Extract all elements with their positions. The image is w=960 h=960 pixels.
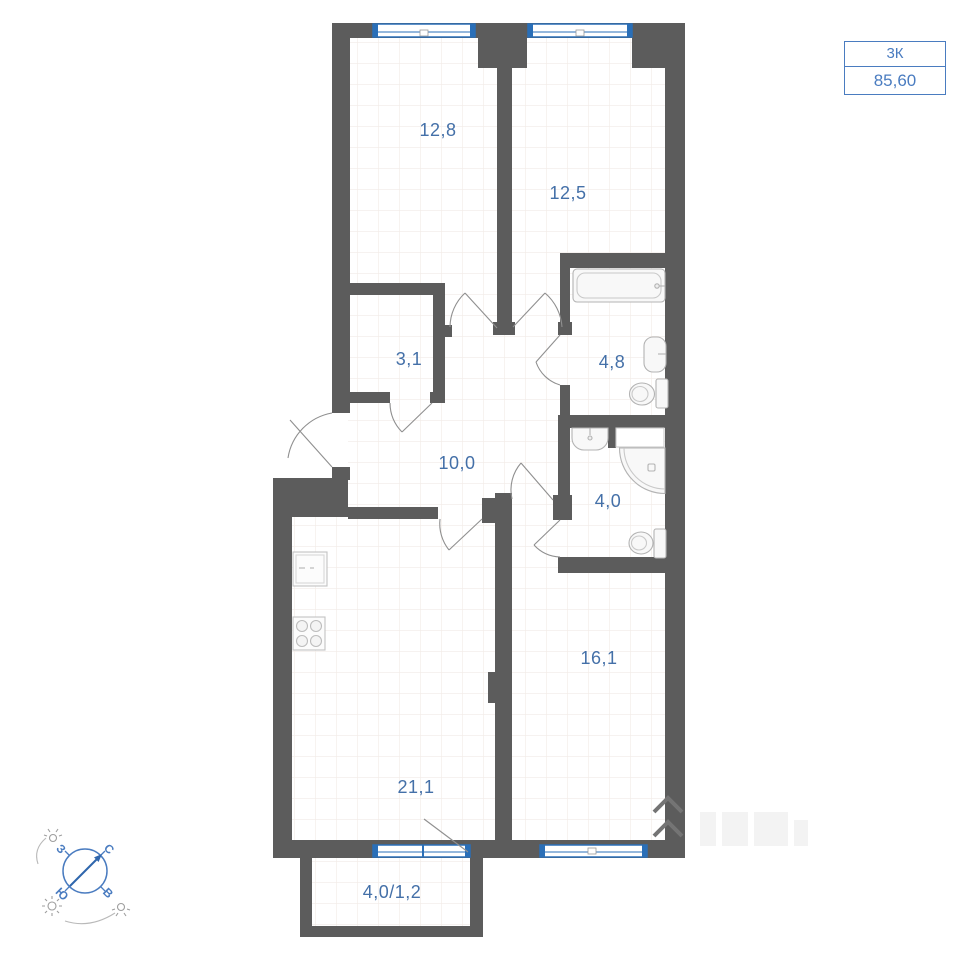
- wall-segment: [300, 855, 312, 937]
- wall-segment: [332, 23, 350, 413]
- wall-segment: [300, 926, 483, 937]
- compass-arrow: [70, 854, 102, 886]
- wall-segment: [560, 385, 570, 415]
- area-label-wardrobe: 3,1: [396, 349, 423, 369]
- area-label-bathroom: 4,8: [599, 352, 626, 372]
- compass-west: З: [53, 841, 68, 856]
- wall-segment: [488, 672, 495, 703]
- shower-washbasin: [572, 428, 608, 450]
- kitchen-sink: [293, 552, 327, 586]
- wall-segment: [560, 253, 570, 322]
- wall-segment: [558, 557, 685, 573]
- wall-segment: [558, 415, 685, 428]
- wall-segment: [348, 283, 445, 295]
- wall-segment: [433, 283, 445, 403]
- half-sun-icon-nw: [44, 829, 62, 842]
- floor-plan-page: 12,8 12,5 3,1 4,8 10,0 4,0 16,1 21,1 4,0…: [0, 0, 960, 960]
- wall-segment: [470, 855, 483, 937]
- duct-niche: [616, 428, 664, 447]
- area-label-hallway: 10,0: [438, 453, 475, 473]
- unit-type-label: 3К: [845, 42, 945, 67]
- bathtub: [573, 269, 665, 302]
- wall-segment: [348, 507, 438, 519]
- wall-segment: [493, 322, 515, 335]
- window: [528, 24, 632, 37]
- bathroom-sink: [644, 337, 666, 372]
- wall-segment: [665, 23, 685, 858]
- wall-segment: [430, 392, 445, 403]
- sun-icon: [42, 896, 62, 916]
- wall-segment: [558, 428, 570, 495]
- wall-segment: [445, 325, 452, 337]
- area-label-balcony: 4,0/1,2: [363, 882, 422, 902]
- area-label-room-3: 16,1: [580, 648, 617, 668]
- wall-segment: [497, 38, 512, 328]
- wall-segment: [558, 322, 572, 335]
- balcony-door-window: [373, 845, 470, 857]
- area-label-bedroom-2: 12,5: [549, 183, 586, 203]
- area-label-kitchen-living: 21,1: [397, 777, 434, 797]
- wall-segment: [495, 493, 512, 842]
- wall-segment: [560, 253, 685, 268]
- area-label-shower-room: 4,0: [595, 491, 622, 511]
- unit-area-label: 85,60: [845, 67, 945, 94]
- stove: [293, 617, 325, 650]
- entrance-door: [288, 413, 332, 467]
- wall-segment: [553, 495, 572, 520]
- compass-north: С: [101, 841, 117, 857]
- compass-east: В: [100, 885, 116, 901]
- half-sun-icon-se: [112, 904, 130, 917]
- compass: С В Ю З: [37, 829, 130, 924]
- area-label-bedroom-1: 12,8: [419, 120, 456, 140]
- wall-segment: [273, 478, 292, 858]
- floor-plan: 12,8 12,5 3,1 4,8 10,0 4,0 16,1 21,1 4,0…: [0, 0, 960, 960]
- window: [540, 845, 647, 857]
- wall-segment: [608, 428, 616, 448]
- unit-badge: 3К 85,60: [844, 41, 946, 95]
- window: [373, 24, 475, 37]
- wall-segment: [348, 392, 390, 403]
